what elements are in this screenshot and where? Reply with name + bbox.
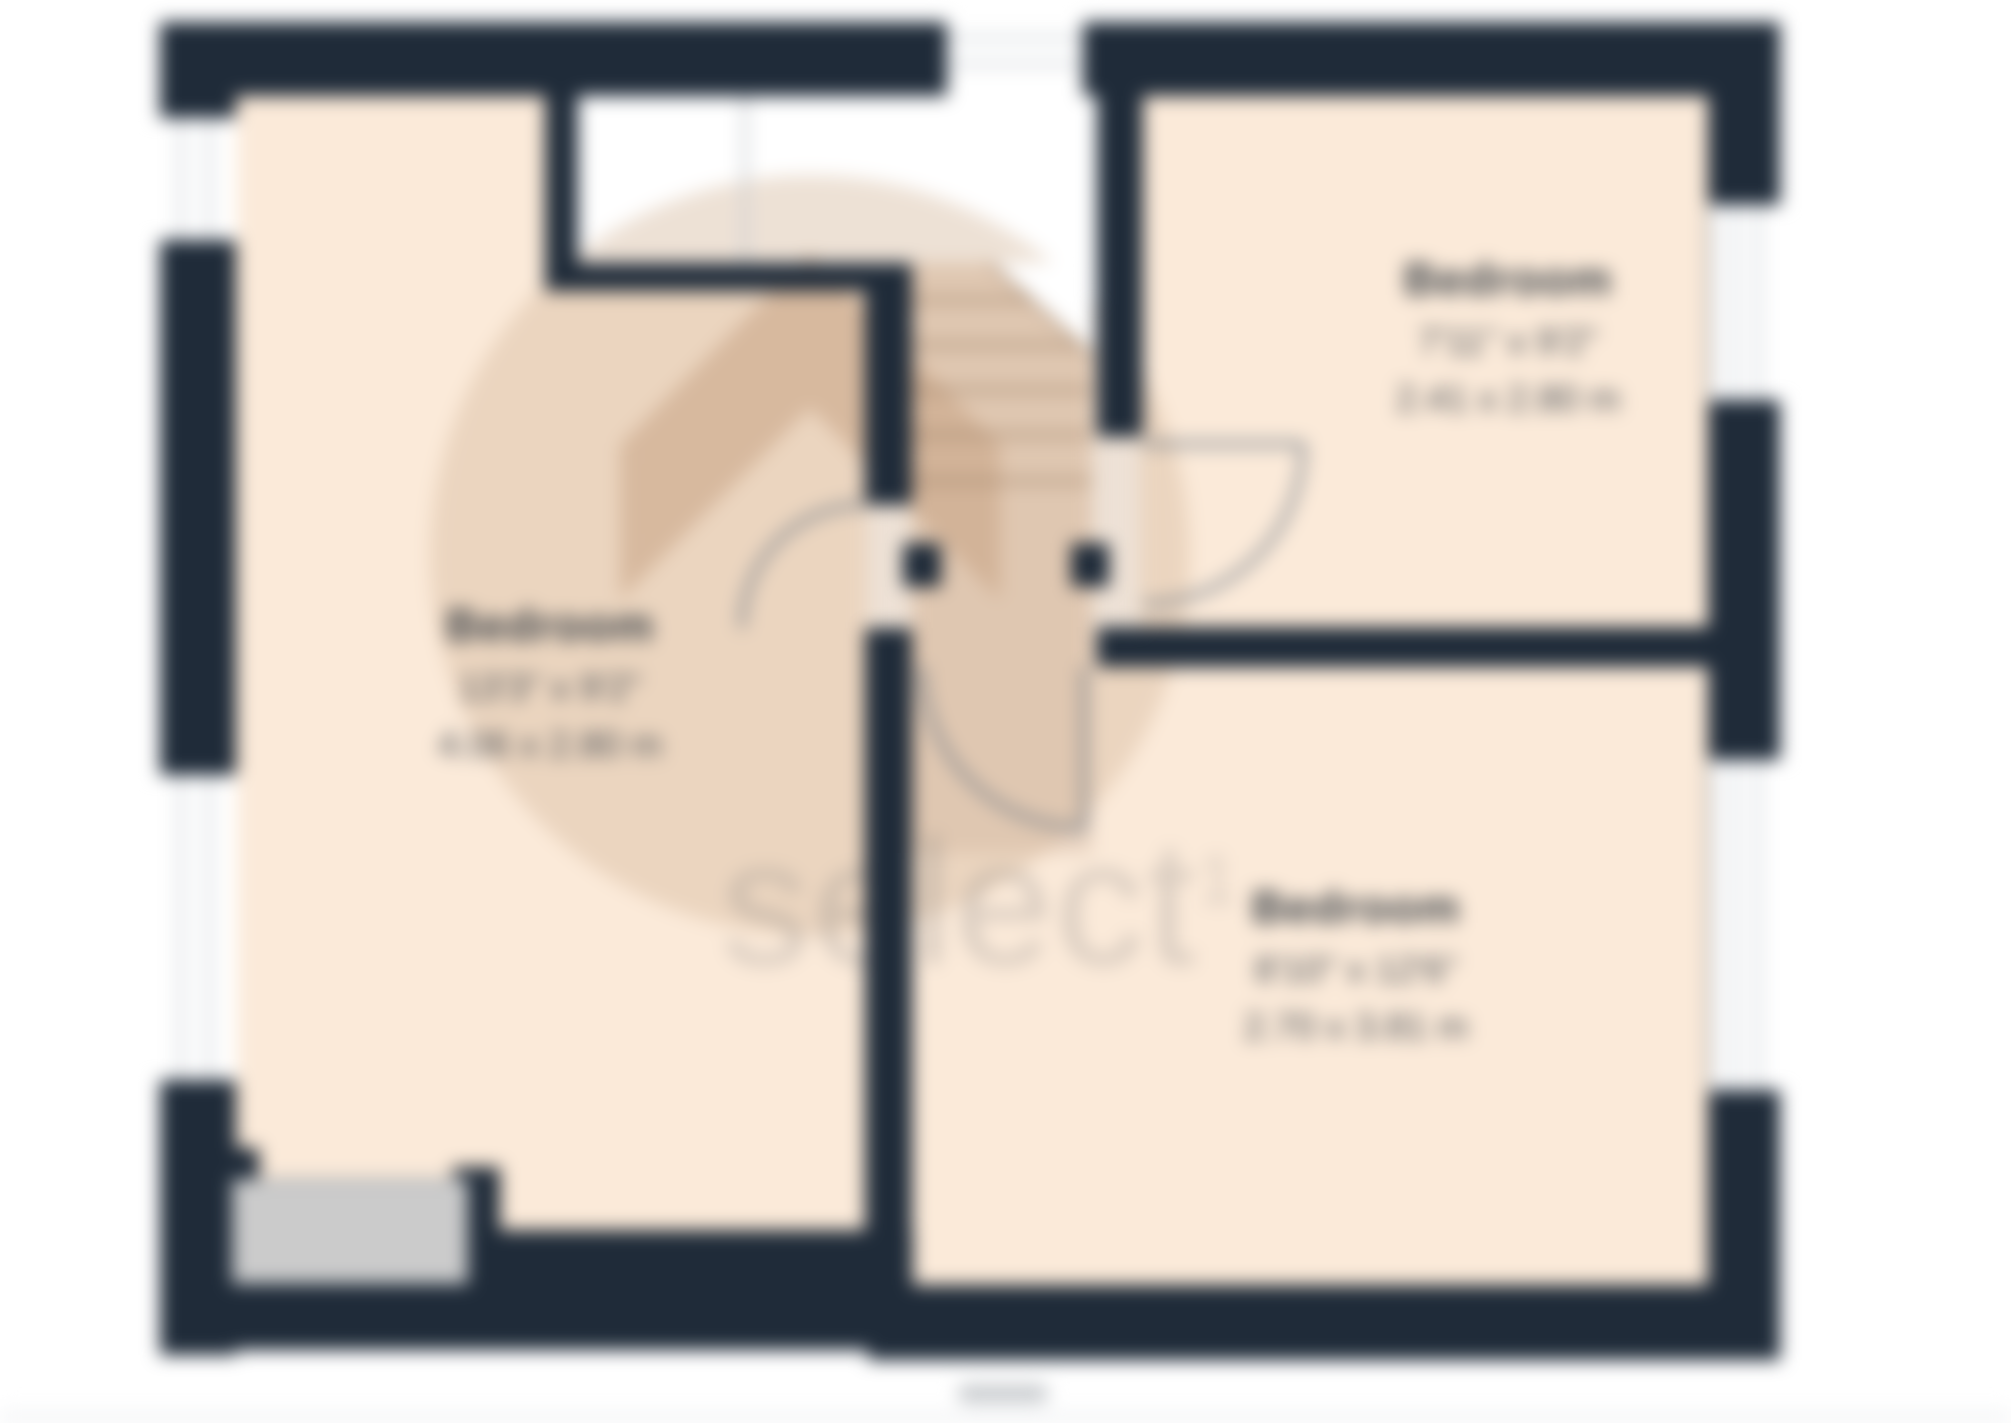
window-right-upper [1710, 205, 1784, 400]
door-swing-left-bedroom [742, 505, 865, 628]
room-imperial: 7'11" x 9'2" [1396, 321, 1620, 363]
label-bedroom-top-right: Bedroom 7'11" x 9'2" 2.41 x 2.80 m [1396, 252, 1620, 420]
room-metric: 2.70 x 3.81 m [1244, 1006, 1468, 1048]
room-name: Bedroom [1396, 252, 1620, 306]
window-right-lower [1710, 760, 1784, 1090]
watermark-arrow-icon [620, 253, 1000, 600]
page-bottom-strip [0, 1406, 2011, 1423]
room-imperial: 8'10" x 12'6" [1244, 949, 1468, 991]
window-left-lower [153, 775, 237, 1080]
room-name: Bedroom [438, 598, 662, 652]
label-bedroom-left: Bedroom 13'3" x 9'2" 4.06 x 2.80 m [438, 598, 662, 766]
room-metric: 2.41 x 2.80 m [1396, 378, 1620, 420]
window-top [947, 10, 1083, 96]
window-left-upper [153, 118, 237, 240]
door-swing-top-right-bedroom [1143, 444, 1303, 604]
plan-linework [0, 0, 2011, 1423]
room-imperial: 13'3" x 9'2" [438, 667, 662, 709]
door-swing-bottom-right-bedroom [923, 667, 1084, 828]
room-name: Bedroom [1244, 880, 1468, 934]
room-metric: 4.06 x 2.80 m [438, 724, 662, 766]
floorplan-image: select1 [0, 0, 2011, 1423]
floorplan-blur-layer: select1 [0, 0, 2011, 1423]
footer-caption-blob [958, 1384, 1048, 1403]
patio-door-bottom-left [233, 1180, 467, 1283]
walls [160, 22, 1780, 1360]
label-bedroom-bottom-right: Bedroom 8'10" x 12'6" 2.70 x 3.81 m [1244, 880, 1468, 1048]
